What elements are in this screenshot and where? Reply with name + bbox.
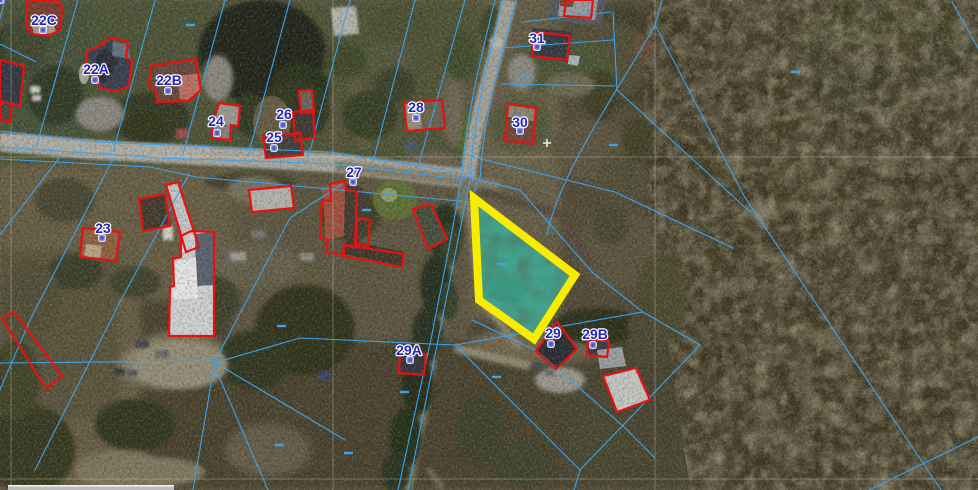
- svg-text:28: 28: [408, 99, 424, 115]
- svg-text:29: 29: [545, 325, 561, 341]
- svg-text:22A: 22A: [83, 61, 109, 77]
- svg-text:29A: 29A: [396, 342, 422, 358]
- svg-text:26: 26: [276, 106, 292, 122]
- svg-text:23: 23: [95, 220, 111, 236]
- svg-text:24: 24: [208, 113, 224, 129]
- svg-text:22B: 22B: [156, 72, 182, 88]
- svg-text:27: 27: [346, 164, 362, 180]
- svg-text:25: 25: [266, 129, 282, 145]
- svg-text:29B: 29B: [582, 326, 608, 342]
- svg-text:22C: 22C: [31, 12, 57, 28]
